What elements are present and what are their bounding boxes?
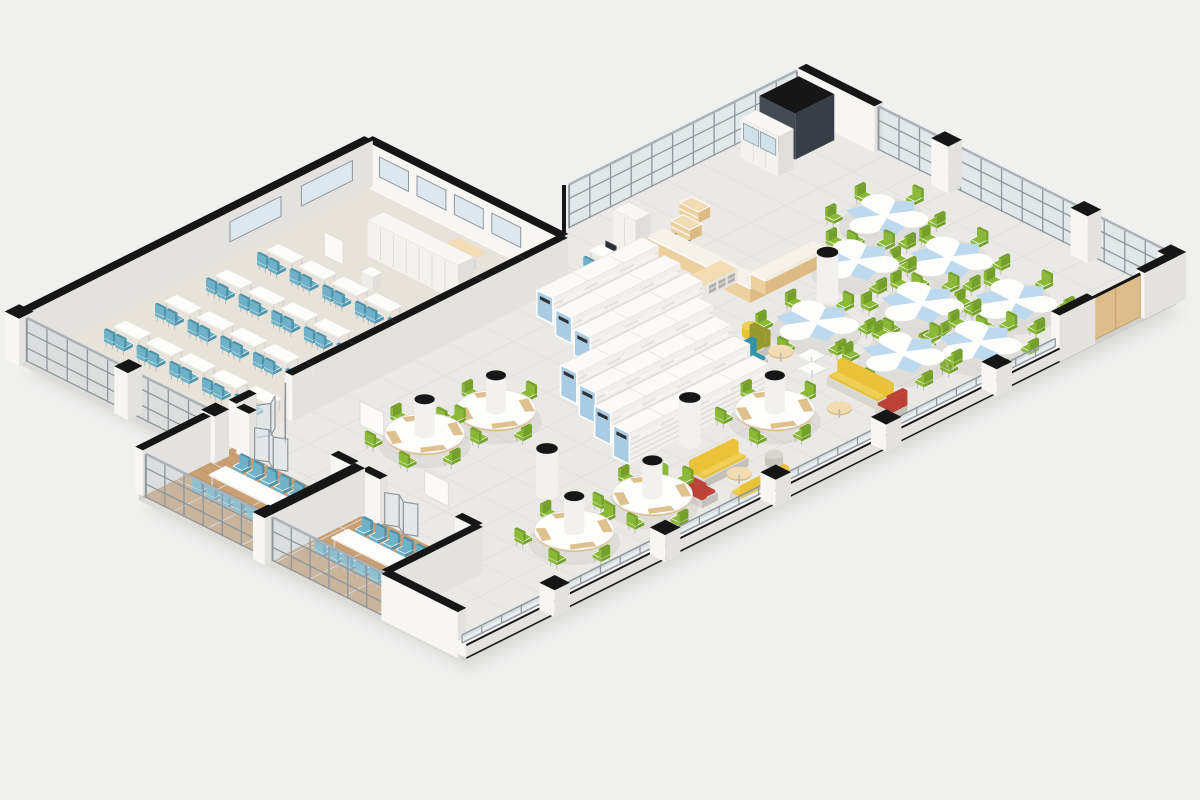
structural-column: [536, 443, 558, 500]
wall-pier: [539, 575, 570, 617]
isometric-floorplan-rendering: [0, 0, 1200, 800]
wall-pier: [114, 359, 142, 420]
floorplan-stage: [0, 0, 1200, 800]
wall-pier: [1071, 201, 1102, 263]
structural-column: [817, 247, 839, 304]
wall-pier: [871, 409, 902, 451]
wall-section: [285, 362, 313, 422]
wall-section: [236, 404, 256, 460]
structural-column: [679, 392, 701, 449]
wall-pier: [760, 465, 791, 507]
wall-pier: [650, 520, 681, 562]
wall-pier: [981, 354, 1012, 396]
wall-section: [361, 466, 387, 525]
wall-pier: [931, 131, 962, 193]
